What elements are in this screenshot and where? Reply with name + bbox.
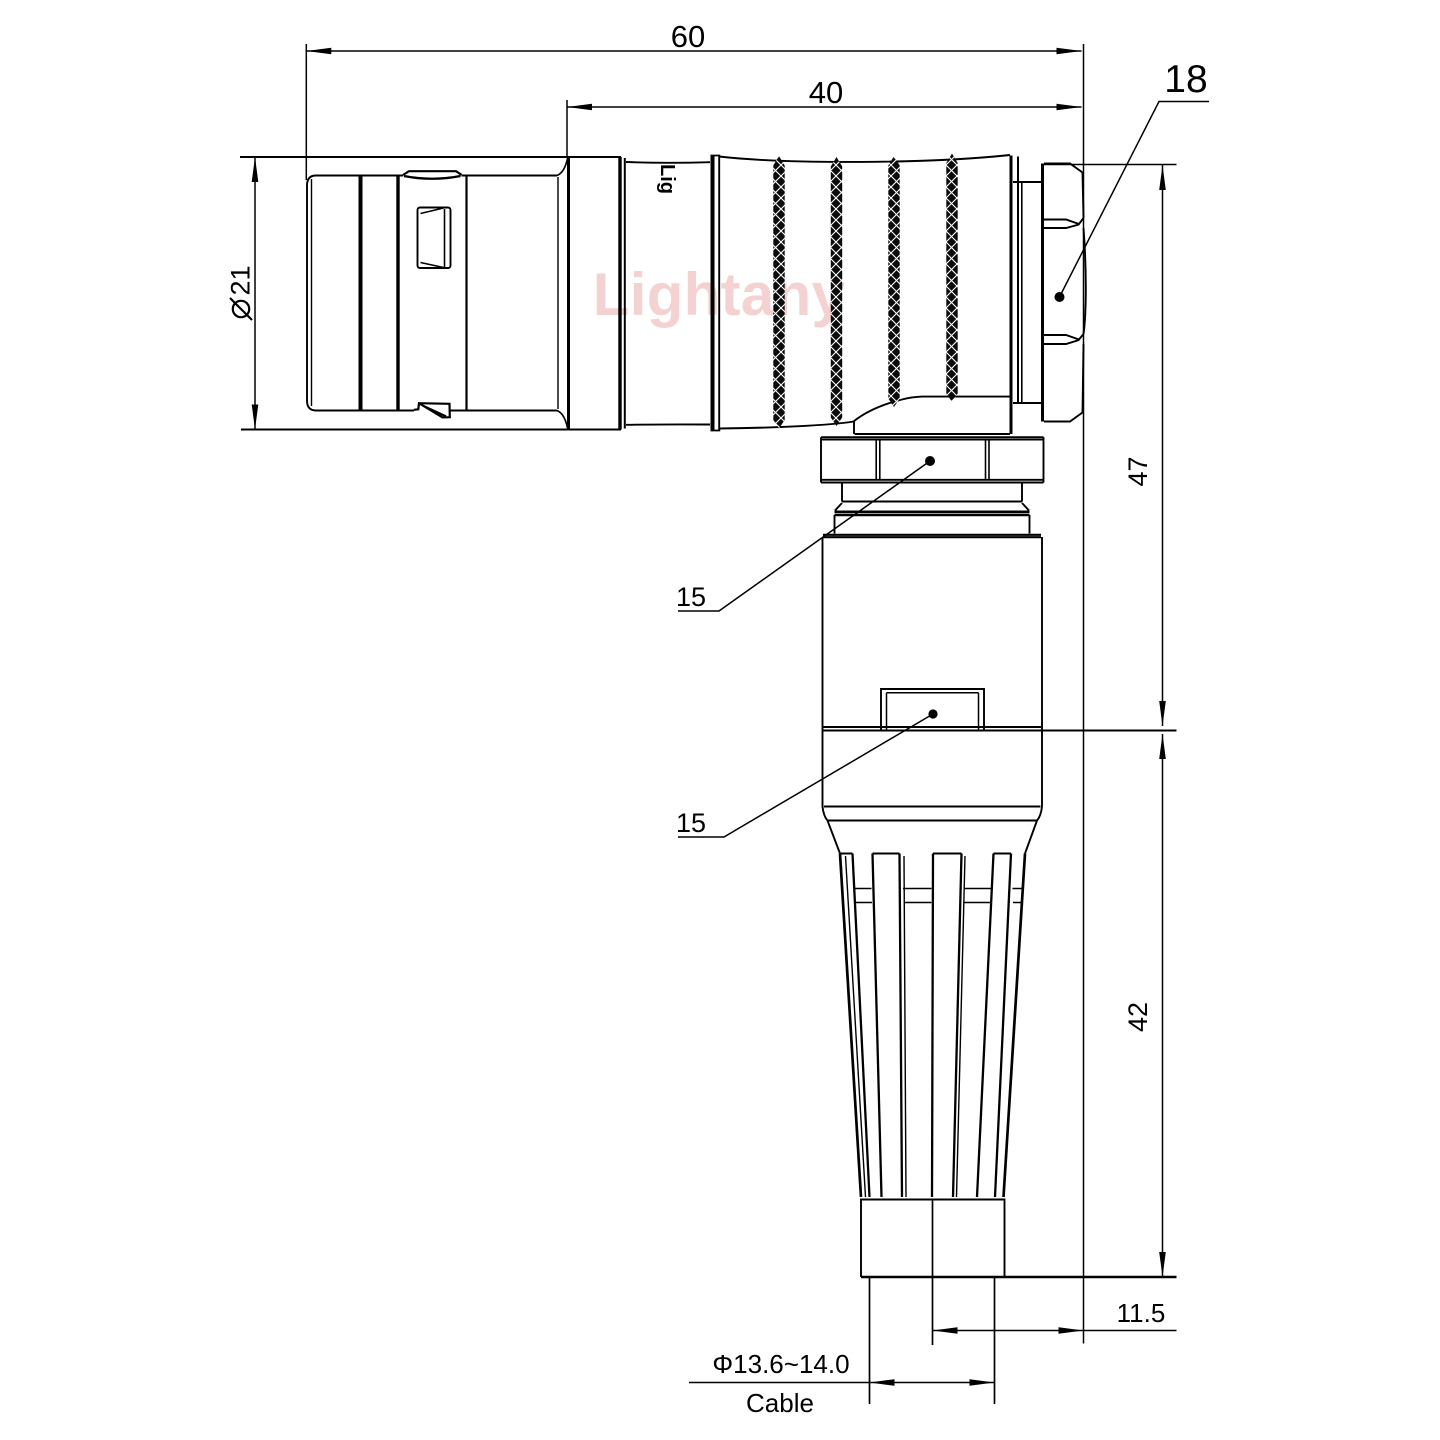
svg-text:42: 42: [1123, 1002, 1153, 1032]
svg-text:60: 60: [671, 19, 705, 54]
svg-text:40: 40: [809, 75, 843, 110]
svg-text:11.5: 11.5: [1117, 1298, 1166, 1328]
svg-text:Lig: Lig: [656, 164, 678, 194]
svg-text:Cable: Cable: [746, 1388, 814, 1418]
svg-text:21: 21: [226, 265, 256, 295]
svg-text:15: 15: [676, 808, 706, 838]
svg-text:47: 47: [1123, 456, 1153, 486]
svg-text:15: 15: [676, 582, 706, 612]
svg-text:Φ13.6~14.0: Φ13.6~14.0: [712, 1349, 849, 1379]
svg-text:18: 18: [1164, 58, 1207, 101]
